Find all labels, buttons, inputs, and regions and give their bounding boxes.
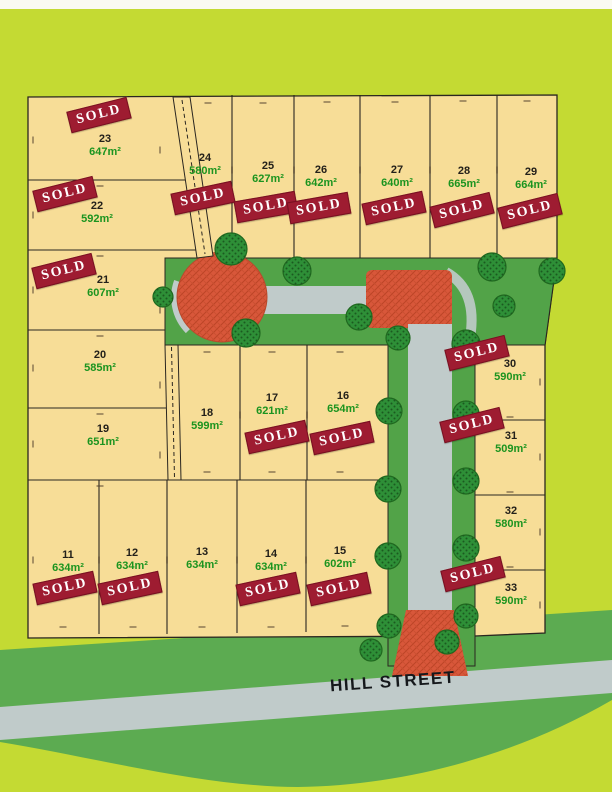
lot-14-label: 14634m²: [236, 548, 306, 574]
lot-12-label: 12634m²: [97, 547, 167, 573]
lot-23-label: 23647m²: [70, 133, 140, 159]
lot-area: 654m²: [308, 403, 378, 416]
lot-area: 602m²: [305, 558, 375, 571]
lot-19-label: 19651m²: [68, 423, 138, 449]
lot-number: 28: [429, 165, 499, 178]
lot-number: 17: [237, 392, 307, 405]
lot-area: 621m²: [237, 405, 307, 418]
lot-31-label: 31509m²: [476, 430, 546, 456]
lot-area: 590m²: [476, 595, 546, 608]
lot-number: 19: [68, 423, 138, 436]
lot-28-label: 28665m²: [429, 165, 499, 191]
lot-area: 647m²: [70, 146, 140, 159]
lot-number: 12: [97, 547, 167, 560]
lot-26-sold-stamp: SOLD: [287, 192, 352, 224]
lot-number: 23: [70, 133, 140, 146]
lot-27-sold-stamp: SOLD: [361, 191, 426, 225]
lot-number: 16: [308, 390, 378, 403]
lot-number: 27: [362, 164, 432, 177]
subdivision-plan-page: 11634m²SOLD12634m²SOLD13634m²14634m²SOLD…: [0, 0, 612, 792]
lot-area: 634m²: [167, 559, 237, 572]
lot-number: 14: [236, 548, 306, 561]
lot-23-sold-stamp: SOLD: [66, 97, 132, 133]
lot-area: 607m²: [68, 287, 138, 300]
lot-20-label: 20585m²: [65, 349, 135, 375]
lot-area: 592m²: [62, 213, 132, 226]
lot-16-label: 16654m²: [308, 390, 378, 416]
lot-26-label: 26642m²: [286, 164, 356, 190]
lot-area: 651m²: [68, 436, 138, 449]
lot-17-label: 17621m²: [237, 392, 307, 418]
lot-area: 580m²: [476, 518, 546, 531]
lot-area: 599m²: [172, 420, 242, 433]
lot-area: 590m²: [475, 371, 545, 384]
lot-14-sold-stamp: SOLD: [235, 572, 300, 606]
lot-18-label: 18599m²: [172, 407, 242, 433]
lot-number: 26: [286, 164, 356, 177]
lot-15-label: 15602m²: [305, 545, 375, 571]
lot-number: 15: [305, 545, 375, 558]
lot-12-sold-stamp: SOLD: [97, 571, 162, 605]
lot-11-sold-stamp: SOLD: [32, 571, 97, 605]
lot-29-label: 29664m²: [496, 166, 566, 192]
lot-area: 585m²: [65, 362, 135, 375]
lot-17-sold-stamp: SOLD: [244, 420, 309, 454]
lot-27-label: 27640m²: [362, 164, 432, 190]
lot-15-sold-stamp: SOLD: [306, 572, 371, 606]
lot-number: 33: [476, 582, 546, 595]
lot-number: 11: [33, 549, 103, 562]
lot-area: 509m²: [476, 443, 546, 456]
lot-number: 20: [65, 349, 135, 362]
lot-area: 640m²: [362, 177, 432, 190]
lot-area: 642m²: [286, 177, 356, 190]
lot-number: 32: [476, 505, 546, 518]
lot-area: 665m²: [429, 178, 499, 191]
lot-24-sold-stamp: SOLD: [170, 181, 235, 215]
lot-22-label: 22592m²: [62, 200, 132, 226]
lot-number: 13: [167, 546, 237, 559]
lot-32-label: 32580m²: [476, 505, 546, 531]
lot-28-sold-stamp: SOLD: [429, 192, 495, 228]
lot-16-sold-stamp: SOLD: [309, 421, 374, 455]
lot-labels-layer: 11634m²SOLD12634m²SOLD13634m²14634m²SOLD…: [0, 0, 612, 792]
lot-13-label: 13634m²: [167, 546, 237, 572]
lot-33-label: 33590m²: [476, 582, 546, 608]
lot-area: 580m²: [170, 165, 240, 178]
lot-29-sold-stamp: SOLD: [497, 193, 563, 229]
lot-number: 29: [496, 166, 566, 179]
lot-number: 24: [170, 152, 240, 165]
lot-number: 18: [172, 407, 242, 420]
lot-area: 664m²: [496, 179, 566, 192]
lot-24-label: 24580m²: [170, 152, 240, 178]
